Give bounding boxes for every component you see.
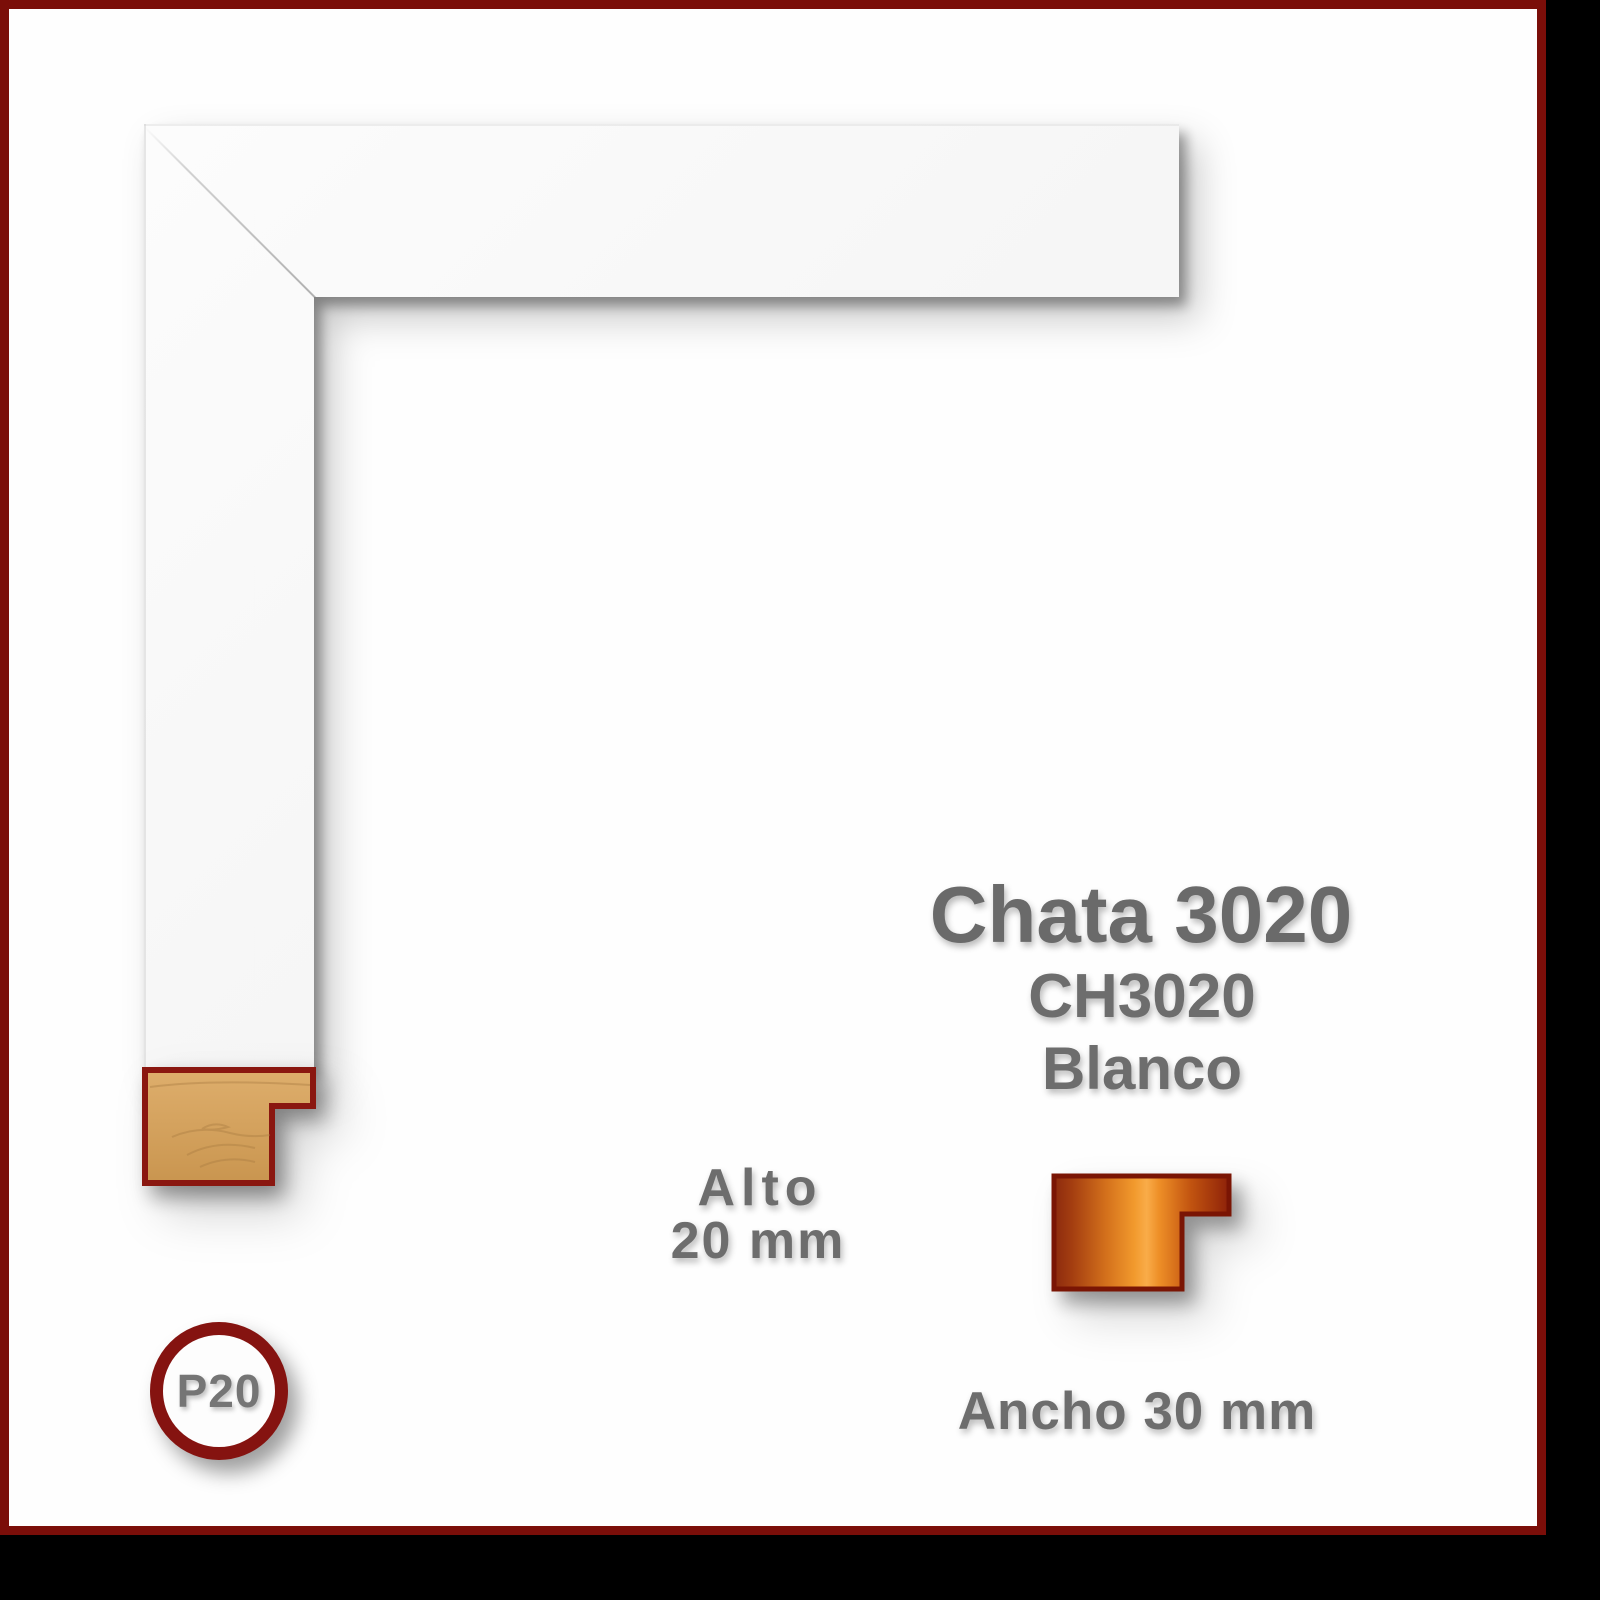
- wood-cross-section: [142, 1067, 316, 1186]
- sample-top-edge-line: [144, 124, 1179, 126]
- miter-seam-line: [144, 126, 317, 299]
- height-label: Alto: [697, 1162, 822, 1214]
- sample-left-edge-line: [144, 124, 146, 1070]
- product-title: Chata 3020: [930, 875, 1352, 955]
- width-label: Ancho 30 mm: [958, 1385, 1317, 1438]
- height-value: 20 mm: [671, 1215, 846, 1267]
- product-finish: Blanco: [1042, 1039, 1242, 1099]
- p20-badge: P20: [150, 1322, 288, 1460]
- p20-badge-label: P20: [177, 1364, 262, 1418]
- profile-shape-icon: [1051, 1173, 1232, 1292]
- product-code: CH3020: [1028, 966, 1255, 1028]
- product-card: Chata 3020 CH3020 Blanco Alto 20 mm: [0, 0, 1546, 1535]
- product-card-canvas: Chata 3020 CH3020 Blanco Alto 20 mm: [0, 0, 1600, 1600]
